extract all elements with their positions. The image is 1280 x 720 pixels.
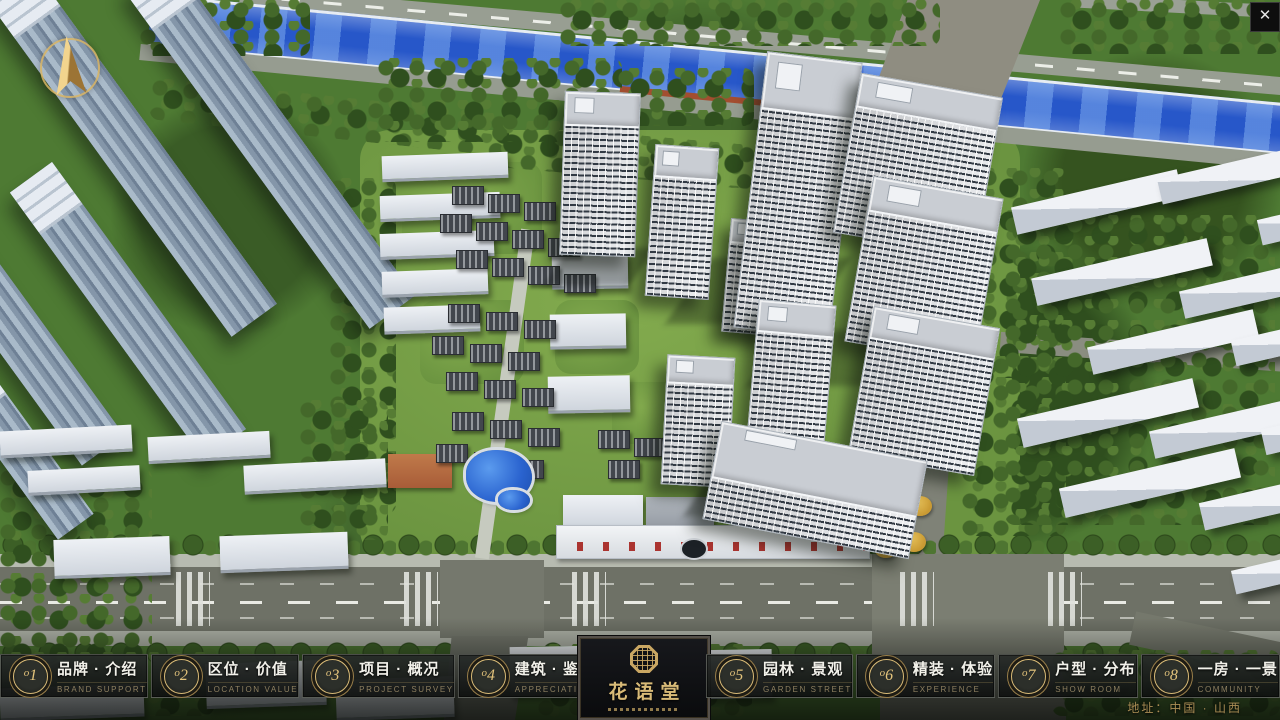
courtyard-house: [524, 320, 556, 339]
site-apartment-row: [382, 152, 509, 182]
nav-subtitle: SHOW ROOM: [1055, 682, 1135, 694]
site-midrise: [548, 375, 631, 413]
nav-group-left: o1 品牌 · 介绍 BRAND SUPPORT o2 区位 · 价值 LOCA…: [0, 654, 578, 698]
nav-badge-07: o7: [1011, 659, 1046, 694]
nav-title: 园林 · 景观: [763, 658, 852, 679]
logo-subtitle-line: [608, 708, 680, 711]
courtyard-house: [508, 352, 540, 371]
nav-item-interior-experience[interactable]: o6 精装 · 体验 EXPERIENCE: [856, 654, 995, 698]
courtyard-house: [528, 428, 560, 447]
courtyard-house: [524, 202, 556, 221]
nav-title: 一房 · 一景: [1198, 658, 1278, 679]
courtyard-house: [436, 444, 468, 463]
nav-subtitle: BRAND SUPPORT: [57, 682, 147, 694]
nav-badge-06: o6: [869, 659, 904, 694]
nav-item-architecture[interactable]: o4 建筑 · 鉴赏 APPRECIATION: [458, 654, 596, 698]
nav-subtitle: COMMUNITY: [1198, 682, 1278, 694]
courtyard-house: [470, 344, 502, 363]
nav-number: o3: [326, 668, 340, 684]
courtyard-house: [452, 412, 484, 431]
nav-number: o4: [481, 668, 495, 684]
courtyard-house: [446, 372, 478, 391]
entrance-fountain: [680, 538, 708, 560]
courtyard-house: [486, 312, 518, 331]
courtyard-house: [608, 460, 640, 479]
nav-number: o5: [730, 668, 744, 684]
close-button[interactable]: ✕: [1250, 2, 1280, 32]
courtyard-house: [492, 258, 524, 277]
courtyard-house: [484, 380, 516, 399]
nav-badge-08: o8: [1154, 659, 1189, 694]
nav-number: o1: [24, 668, 38, 684]
courtyard-house: [490, 420, 522, 439]
residential-tower: [645, 144, 719, 300]
courtyard-house: [476, 222, 508, 241]
courtyard-house: [488, 194, 520, 213]
nav-badge-04: o4: [471, 659, 506, 694]
courtyard-house: [432, 336, 464, 355]
nav-labels: 园林 · 景观 GARDEN STREET: [763, 658, 852, 694]
tree-cluster: [560, 0, 940, 46]
courtyard-house: [440, 214, 472, 233]
nav-badge-01: o1: [13, 659, 48, 694]
courtyard-house: [452, 186, 484, 205]
nav-labels: 区位 · 价值 LOCATION VALUE: [208, 658, 299, 694]
courtyard-house: [448, 304, 480, 323]
swimming-pool-small: [498, 490, 530, 510]
courtyard-house: [598, 430, 630, 449]
nav-labels: 项目 · 概况 PROJECT SURVEY: [359, 658, 454, 694]
nav-labels: 精装 · 体验 EXPERIENCE: [913, 658, 993, 694]
project-name: 花语堂: [601, 677, 686, 704]
low-rise-row: [53, 536, 170, 579]
low-rise-row: [219, 532, 348, 573]
nav-badge-03: o3: [315, 659, 350, 694]
nav-item-brand-intro[interactable]: o1 品牌 · 介绍 BRAND SUPPORT: [0, 654, 148, 698]
nav-number: o6: [880, 668, 894, 684]
nav-item-location-value[interactable]: o2 区位 · 价值 LOCATION VALUE: [151, 654, 300, 698]
low-rise-row: [0, 425, 133, 459]
nav-item-room-view[interactable]: o8 一房 · 一景 COMMUNITY: [1141, 654, 1280, 698]
nav-number: o8: [1164, 668, 1178, 684]
nav-item-project-survey[interactable]: o3 项目 · 概况 PROJECT SURVEY: [302, 654, 455, 698]
aerial-site-map[interactable]: [0, 0, 1280, 720]
nav-title: 精装 · 体验: [913, 658, 993, 679]
presentation-window: ✕ o1 品牌 · 介绍 BRAND SUPPORT o2 区位 · 价值 LO…: [0, 0, 1280, 720]
nav-subtitle: LOCATION VALUE: [208, 682, 299, 694]
nav-subtitle: EXPERIENCE: [913, 682, 993, 694]
project-logo-panel[interactable]: 花语堂: [578, 636, 710, 720]
site-apartment-row: [382, 268, 489, 298]
nav-badge-05: o5: [719, 659, 754, 694]
nav-subtitle: PROJECT SURVEY: [359, 682, 454, 694]
nav-title: 品牌 · 介绍: [57, 658, 147, 679]
nav-subtitle: GARDEN STREET: [763, 682, 852, 694]
project-address: 地址：中国 · 山西: [1127, 699, 1242, 716]
nav-item-floorplan-distribution[interactable]: o7 户型 · 分布 SHOW ROOM: [998, 654, 1137, 698]
nav-group-right: o5 园林 · 景观 GARDEN STREET o6 精装 · 体验 EXPE…: [706, 654, 1280, 698]
nav-title: 区位 · 价值: [208, 658, 299, 679]
nav-title: 项目 · 概况: [359, 658, 454, 679]
courtyard-house: [522, 388, 554, 407]
tree-cluster: [1060, 0, 1280, 54]
courtyard-house: [456, 250, 488, 269]
nav-labels: 品牌 · 介绍 BRAND SUPPORT: [57, 658, 147, 694]
site-midrise: [550, 313, 627, 349]
nav-labels: 一房 · 一景 COMMUNITY: [1198, 658, 1278, 694]
residential-tower: [559, 91, 641, 258]
nav-labels: 户型 · 分布 SHOW ROOM: [1055, 658, 1135, 694]
low-rise-row: [147, 431, 270, 464]
nav-badge-02: o2: [164, 659, 199, 694]
nav-item-garden-landscape[interactable]: o5 园林 · 景观 GARDEN STREET: [706, 654, 853, 698]
logo-seal-pattern: [633, 648, 655, 670]
nav-title: 户型 · 分布: [1055, 658, 1135, 679]
nav-number: o7: [1022, 668, 1036, 684]
logo-seal-icon: [630, 645, 658, 673]
close-icon: ✕: [1259, 7, 1272, 24]
nav-number: o2: [174, 668, 188, 684]
courtyard-house: [512, 230, 544, 249]
